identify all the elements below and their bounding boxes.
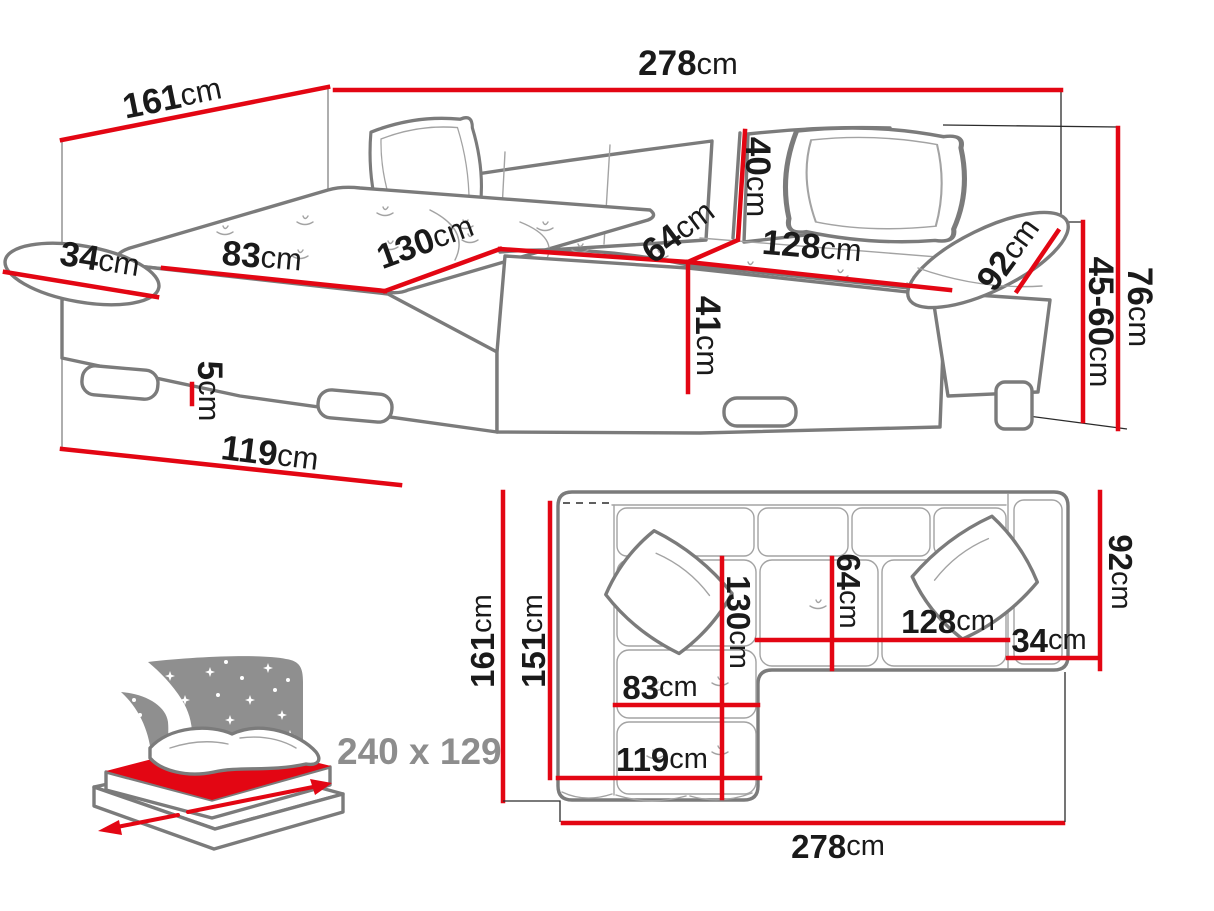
plan-dim-chaise-front-width: 119cm [616, 741, 708, 778]
plan-dim-depth-total: 161cm [464, 594, 501, 688]
dim-base-height: 41cm [689, 296, 728, 376]
duvet [150, 728, 319, 774]
perspective-view: 161cm 278cm 34cm 83cm 130cm 64cm 40cm 12… [0, 44, 1159, 486]
plan-dim-total-width: 278cm [791, 828, 885, 865]
plan-view: 161cm 151cm 130cm 64cm 83cm 119cm 128cm … [464, 492, 1140, 865]
dim-chaise-front-width: 119cm [219, 428, 321, 479]
sleeping-function-icon: 240 x 129 [94, 656, 502, 849]
sofa-perspective-sketch [0, 113, 1080, 433]
bed-size-label: 240 x 129 [337, 731, 502, 772]
sofa-dimensions-diagram: 161cm 278cm 34cm 83cm 130cm 64cm 40cm 12… [0, 0, 1214, 911]
plan-dim-chaise-seat-width: 83cm [622, 669, 697, 706]
dim-total-height: 76cm [1121, 267, 1160, 347]
dim-total-width: 278cm [638, 44, 738, 83]
dim-leg-height: 5cm [191, 361, 230, 422]
plan-dim-seat-length: 128cm [901, 603, 995, 640]
plan-dim-seat-depth: 64cm [831, 553, 868, 628]
plan-dim-chaise-length: 130cm [721, 575, 758, 669]
armrest-right-body [932, 292, 1050, 396]
diagram-canvas: 161cm 278cm 34cm 83cm 130cm 64cm 40cm 12… [0, 0, 1214, 911]
plan-dim-armrest-width: 34cm [1011, 622, 1086, 659]
plan-dim-depth-inner: 151cm [515, 594, 552, 688]
dim-seat-height: 45-60cm [1082, 257, 1121, 388]
dim-backrest-height: 40cm [739, 137, 778, 217]
plan-dim-side-depth: 92cm [1103, 534, 1140, 609]
fold-out-bed [94, 728, 343, 849]
